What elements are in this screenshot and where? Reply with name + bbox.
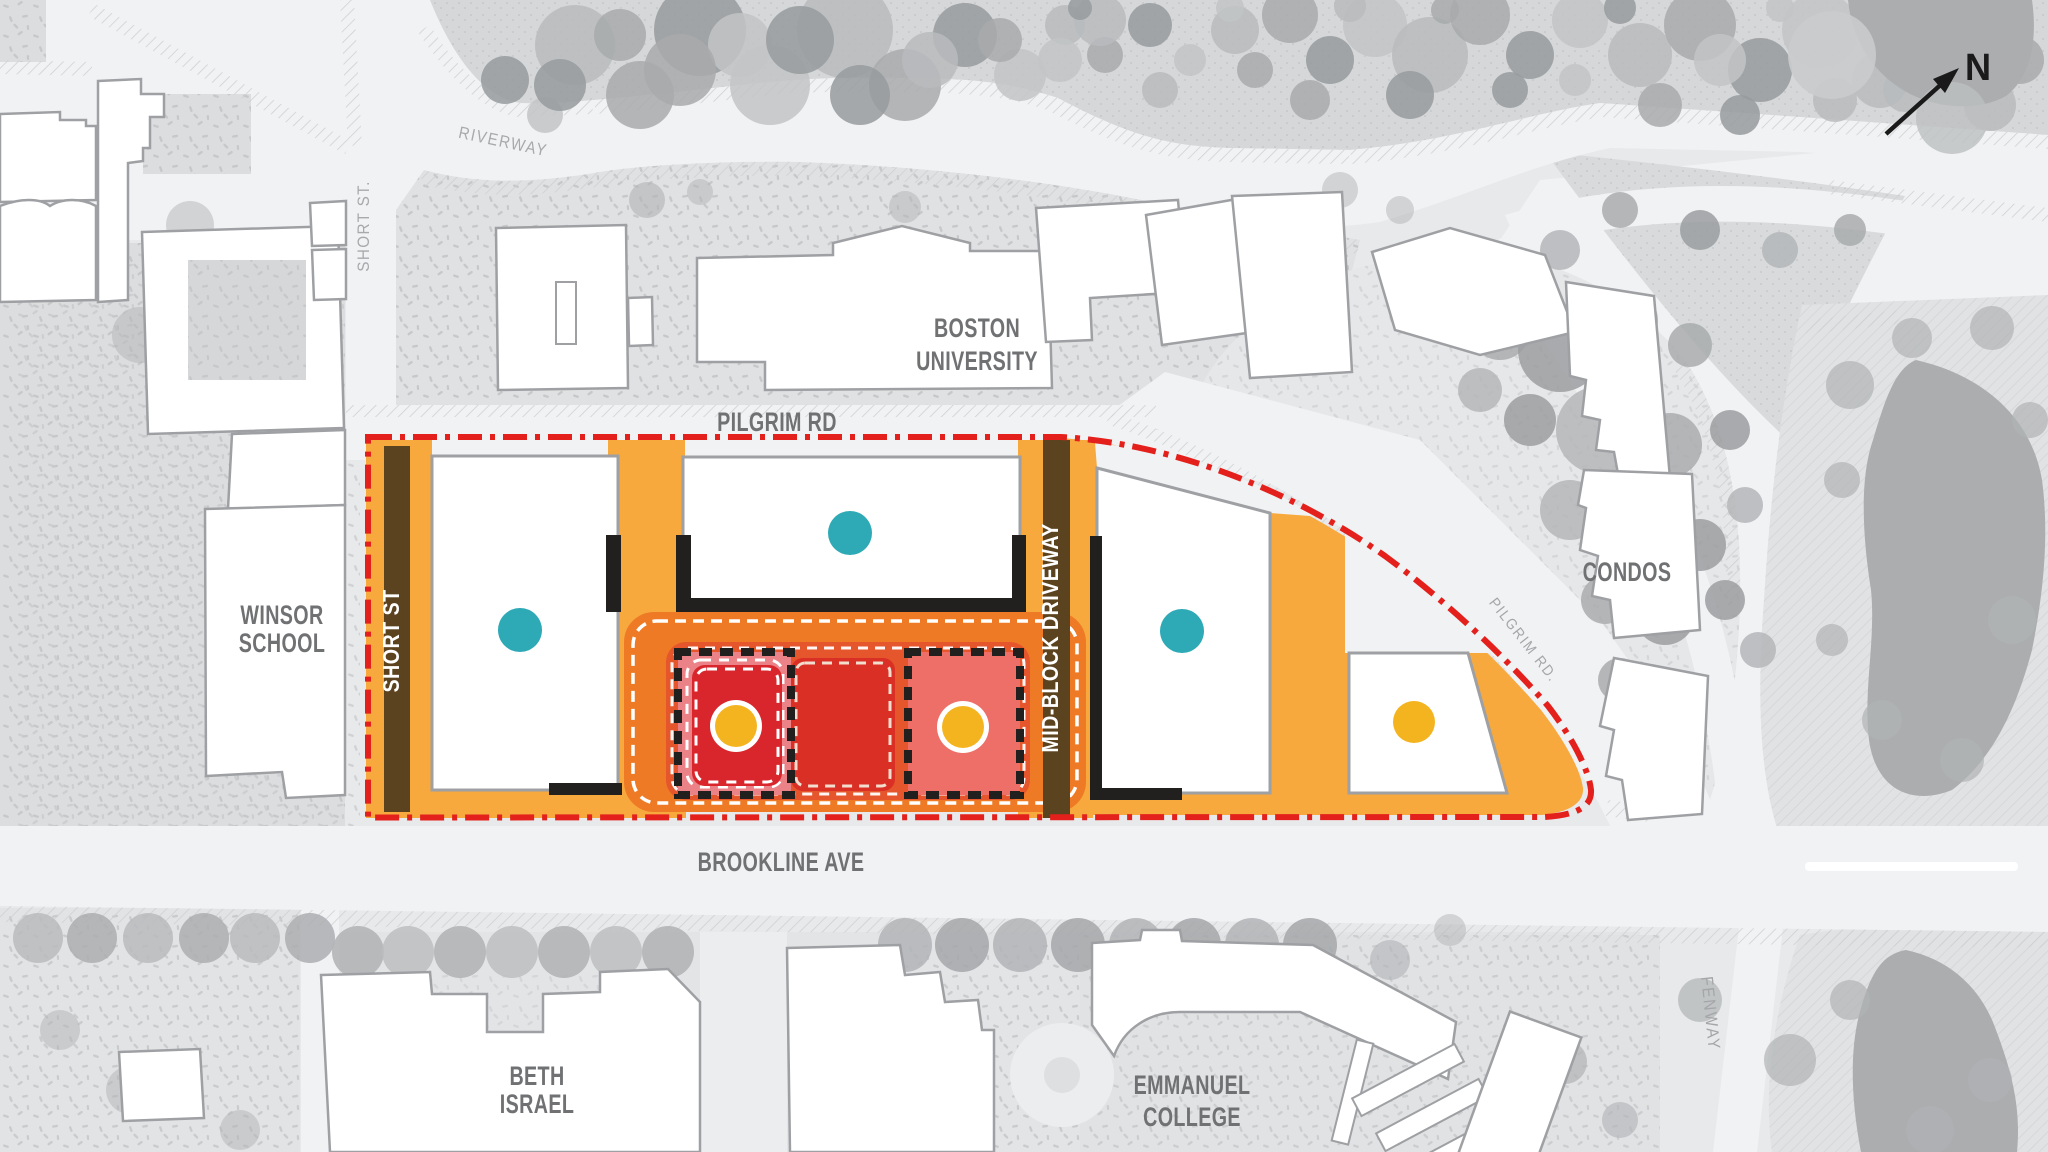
svg-text:WINSOR: WINSOR [240,601,323,631]
svg-text:SHORT ST: SHORT ST [377,589,404,692]
svg-text:N: N [1965,45,1991,88]
svg-text:BETH: BETH [509,1062,564,1092]
svg-text:UNIVERSITY: UNIVERSITY [916,347,1038,377]
svg-text:PILGRIM RD: PILGRIM RD [717,408,837,438]
svg-text:SHORT ST.: SHORT ST. [354,180,373,271]
svg-text:CONDOS: CONDOS [1583,558,1672,588]
svg-text:EMMANUEL: EMMANUEL [1134,1071,1251,1101]
svg-text:BOSTON: BOSTON [934,314,1020,344]
svg-text:COLLEGE: COLLEGE [1143,1103,1241,1133]
svg-text:ISRAEL: ISRAEL [500,1090,574,1120]
svg-text:MID-BLOCK DRIVEWAY: MID-BLOCK DRIVEWAY [1036,523,1063,752]
svg-text:BROOKLINE AVE: BROOKLINE AVE [698,848,865,878]
svg-text:SCHOOL: SCHOOL [239,629,325,659]
